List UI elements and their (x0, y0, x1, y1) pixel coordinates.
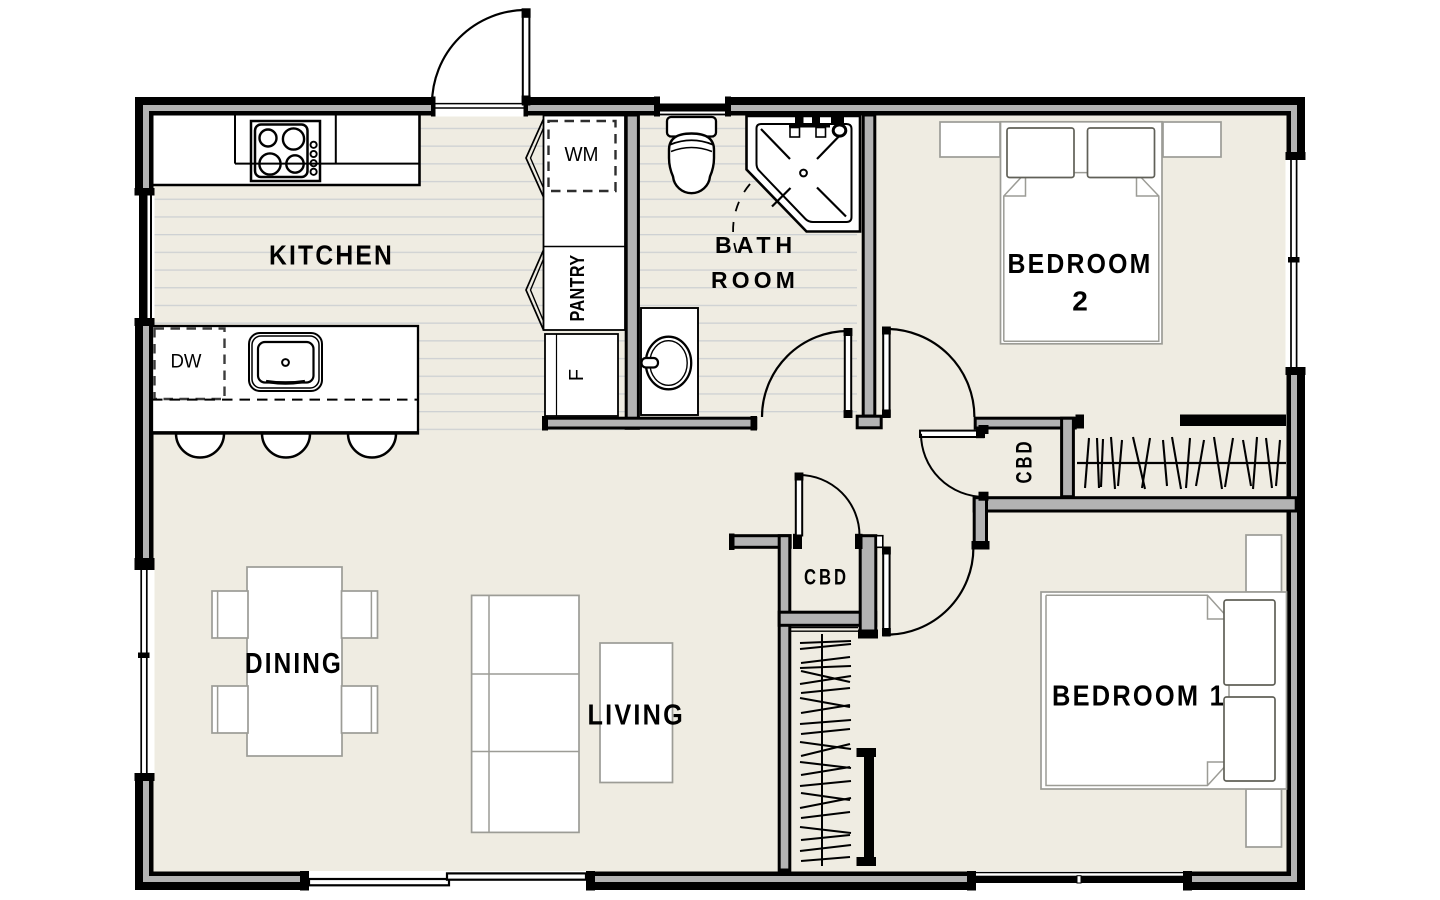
svg-text:DW: DW (171, 351, 203, 373)
svg-text:BEDROOM: BEDROOM (1008, 248, 1153, 279)
svg-text:PANTRY: PANTRY (567, 254, 589, 321)
svg-text:KITCHEN: KITCHEN (269, 240, 394, 271)
svg-text:CBD: CBD (1012, 439, 1037, 484)
svg-text:ROOM: ROOM (711, 267, 799, 293)
svg-text:LIVING: LIVING (587, 700, 685, 732)
svg-text:2: 2 (1072, 286, 1088, 317)
svg-text:BATH: BATH (715, 232, 797, 258)
svg-text:WM: WM (565, 143, 599, 166)
svg-text:BEDROOM 1: BEDROOM 1 (1052, 681, 1226, 713)
svg-text:F: F (566, 369, 588, 381)
svg-text:DINING: DINING (245, 648, 343, 680)
svg-text:CBD: CBD (804, 565, 849, 590)
